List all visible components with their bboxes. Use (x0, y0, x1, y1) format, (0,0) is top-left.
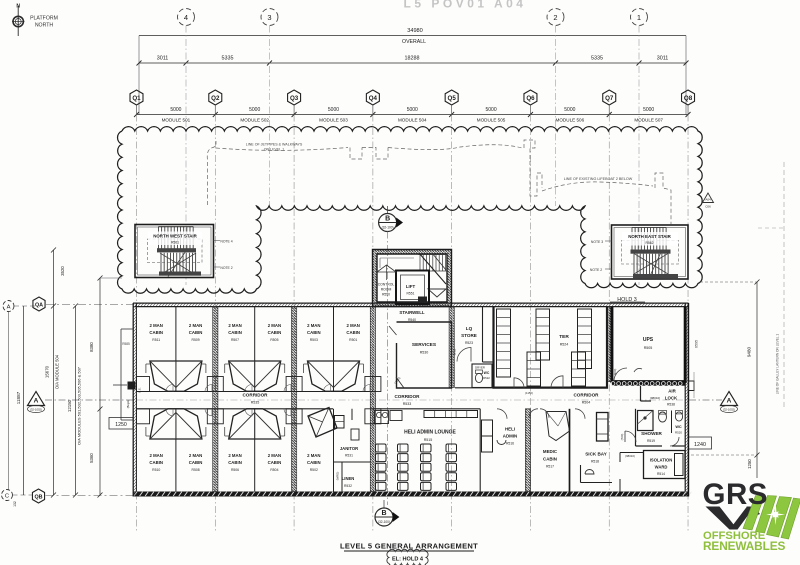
svg-text:NOTE 2: NOTE 2 (590, 268, 602, 272)
svg-text:STORE: STORE (461, 333, 477, 338)
svg-text:1: 1 (637, 13, 641, 22)
svg-text:HELI ADMIN LOUNGE: HELI ADMIN LOUNGE (404, 430, 456, 436)
svg-text:CABIN: CABIN (268, 330, 282, 335)
svg-text:LINEN: LINEN (342, 476, 355, 481)
svg-text:5000: 5000 (328, 107, 339, 113)
svg-text:1250: 1250 (115, 422, 127, 428)
svg-text:C: C (5, 493, 9, 499)
svg-text:PLATFORM: PLATFORM (30, 16, 58, 22)
svg-text:R505: R505 (644, 346, 653, 350)
svg-text:2 MAN: 2 MAN (189, 453, 202, 458)
svg-text:C06: C06 (705, 205, 711, 209)
svg-text:R501: R501 (349, 338, 357, 342)
svg-text:3520: 3520 (60, 266, 65, 276)
svg-text:CABIN: CABIN (228, 330, 242, 335)
svg-text:(760): (760) (620, 434, 624, 441)
svg-text:R510: R510 (152, 468, 160, 472)
svg-text:R520: R520 (675, 431, 682, 435)
svg-text:5000: 5000 (407, 107, 418, 113)
svg-text:MODULE 503: MODULE 503 (319, 118, 348, 123)
svg-text:5335: 5335 (222, 56, 234, 62)
svg-text:R504: R504 (270, 468, 278, 472)
svg-text:STAIRWELL: STAIRWELL (399, 310, 425, 315)
svg-text:(32-1002): (32-1002) (30, 408, 42, 412)
svg-text:34980: 34980 (407, 28, 423, 34)
svg-text:18288: 18288 (405, 56, 420, 62)
svg-text:N: N (16, 4, 20, 10)
svg-text:R522: R522 (483, 376, 490, 380)
svg-text:CABIN: CABIN (189, 330, 203, 335)
svg-text:LINE OF EXISTING LIFEBOAT 2 BE: LINE OF EXISTING LIFEBOAT 2 BELOW (564, 177, 633, 181)
svg-text:MODULE 501: MODULE 501 (162, 118, 191, 123)
svg-text:R531: R531 (345, 454, 353, 458)
svg-text:132: 132 (13, 501, 17, 507)
svg-text:5360: 5360 (89, 453, 94, 463)
svg-text:O/A MODULE 504: O/A MODULE 504 (55, 354, 60, 389)
svg-text:R516: R516 (506, 442, 514, 446)
svg-text:R532: R532 (344, 484, 352, 488)
svg-text:R518: R518 (591, 460, 599, 464)
svg-text:R535: R535 (251, 401, 260, 405)
svg-text:OVERALL: OVERALL (402, 39, 426, 45)
svg-text:4: 4 (184, 13, 188, 22)
svg-text:MODULE 507: MODULE 507 (634, 118, 663, 123)
svg-text:SHOWER: SHOWER (641, 431, 662, 436)
svg-text:R506: R506 (231, 468, 239, 472)
svg-text:R508: R508 (192, 468, 200, 472)
svg-text:GRS: GRS (703, 478, 768, 511)
svg-text:Q3: Q3 (290, 95, 299, 102)
svg-text:B: B (385, 216, 390, 223)
svg-text:R519: R519 (647, 439, 655, 443)
svg-text:CORRIDOR: CORRIDOR (394, 394, 420, 399)
svg-text:5000: 5000 (249, 107, 260, 113)
svg-text:ADMIN: ADMIN (503, 434, 517, 439)
svg-text:R523: R523 (465, 341, 473, 345)
svg-text:MEDIC: MEDIC (543, 449, 558, 454)
svg-text:CABIN: CABIN (189, 460, 203, 465)
svg-text:CABIN: CABIN (307, 330, 321, 335)
svg-text:WARD: WARD (655, 465, 668, 470)
svg-text:Q7: Q7 (605, 95, 614, 102)
svg-text:ISOLATION: ISOLATION (650, 458, 673, 463)
svg-text:Q8: Q8 (684, 95, 693, 102)
svg-text:CABIN: CABIN (307, 460, 321, 465)
svg-text:R551: R551 (407, 292, 415, 296)
svg-text:(1150): (1150) (525, 391, 533, 395)
svg-text:E.E.: E.E. (138, 387, 142, 393)
svg-text:R561: R561 (171, 241, 179, 245)
svg-text:CABIN: CABIN (268, 460, 282, 465)
svg-text:NORTH WEST STAIR: NORTH WEST STAIR (153, 234, 197, 239)
svg-text:NOTE 3: NOTE 3 (591, 240, 603, 244)
svg-text:LINE OF JETPIPES & WALKWAYS: LINE OF JETPIPES & WALKWAYS (246, 143, 303, 147)
svg-text:LQ: LQ (466, 326, 473, 331)
svg-text:1240: 1240 (694, 442, 706, 448)
svg-text:DRYER: DRYER (475, 366, 485, 370)
svg-text:(32-1002): (32-1002) (723, 408, 735, 412)
svg-text:LIFT: LIFT (406, 284, 416, 289)
svg-text:LINE OF GALLEY LANTERN ON LEVE: LINE OF GALLEY LANTERN ON LEVEL 1 (776, 334, 780, 395)
svg-text:R503: R503 (310, 338, 318, 342)
svg-text:5000: 5000 (564, 107, 575, 113)
svg-text:5335: 5335 (591, 56, 603, 62)
svg-text:CABIN: CABIN (149, 330, 163, 335)
svg-text:R504: R504 (582, 401, 591, 405)
svg-text:R511: R511 (152, 338, 160, 342)
svg-text:(32-100): (32-100) (378, 520, 390, 524)
svg-text:2 MAN: 2 MAN (150, 453, 163, 458)
svg-text:TER: TER (559, 334, 569, 340)
svg-text:2 MAN: 2 MAN (228, 453, 241, 458)
svg-text:MODULE 505: MODULE 505 (477, 118, 506, 123)
svg-text:NORTH: NORTH (35, 23, 54, 29)
svg-text:ON LEVEL 1: ON LEVEL 1 (264, 148, 284, 152)
svg-text:6595: 6595 (695, 340, 699, 348)
svg-text:RENEWABLES: RENEWABLES (703, 539, 785, 553)
svg-text:15670: 15670 (45, 365, 50, 378)
svg-text:Q5: Q5 (448, 95, 457, 102)
svg-text:MODULE 504: MODULE 504 (398, 118, 427, 123)
svg-text:5000: 5000 (170, 107, 181, 113)
svg-text:SICK BAY: SICK BAY (585, 452, 607, 457)
svg-text:MODULE 502: MODULE 502 (240, 118, 269, 123)
svg-text:2: 2 (553, 13, 557, 22)
svg-text:AIR: AIR (668, 389, 676, 394)
svg-text:JANITOR: JANITOR (340, 446, 358, 451)
svg-text:R538: R538 (667, 403, 675, 407)
svg-text:CORRIDOR: CORRIDOR (242, 393, 268, 398)
svg-text:SERVICES: SERVICES (412, 342, 437, 348)
svg-text:R550: R550 (382, 293, 390, 297)
svg-text:MODULE 506: MODULE 506 (556, 118, 585, 123)
svg-text:3: 3 (267, 13, 271, 22)
svg-text:(98010): (98010) (650, 396, 660, 400)
svg-text:A: A (7, 304, 11, 310)
svg-text:HELI: HELI (505, 427, 515, 432)
svg-text:Q1: Q1 (132, 95, 141, 102)
svg-text:(Begin): (Begin) (126, 400, 130, 408)
svg-text:12150: 12150 (67, 399, 72, 412)
svg-text:CABIN: CABIN (346, 330, 360, 335)
svg-text:2 MAN: 2 MAN (307, 453, 320, 458)
svg-text:R502: R502 (310, 468, 318, 472)
svg-text:WC: WC (484, 371, 490, 375)
svg-text:LOCK: LOCK (665, 396, 678, 401)
svg-text:2 MAN: 2 MAN (307, 323, 320, 328)
svg-text:QB: QB (34, 494, 42, 500)
svg-text:Q2: Q2 (211, 95, 220, 102)
svg-text:A04: A04 (705, 198, 711, 202)
svg-text:NOTE 4: NOTE 4 (220, 239, 232, 243)
svg-text:CABIN: CABIN (228, 460, 242, 465)
svg-text:2 MAN: 2 MAN (189, 323, 202, 328)
svg-text:Q4: Q4 (369, 95, 378, 102)
svg-text:(98010): (98010) (625, 454, 635, 458)
svg-text:2 MAN: 2 MAN (150, 323, 163, 328)
svg-text:CABIN: CABIN (149, 460, 163, 465)
svg-text:CABIN: CABIN (543, 457, 557, 462)
svg-text:B: B (381, 510, 386, 517)
svg-text:2 MAN: 2 MAN (347, 323, 360, 328)
svg-text:A: A (727, 398, 732, 405)
svg-text:R515: R515 (424, 438, 433, 442)
svg-text:NORTH EAST STAIR: NORTH EAST STAIR (628, 234, 671, 239)
svg-text:2 MAN: 2 MAN (268, 453, 281, 458)
svg-text:2 MAN: 2 MAN (228, 323, 241, 328)
svg-text:R530: R530 (420, 351, 429, 355)
svg-text:R517: R517 (546, 465, 554, 469)
svg-text:R505: R505 (270, 338, 278, 342)
svg-text:CORRIDOR: CORRIDOR (573, 393, 599, 398)
svg-text:5000: 5000 (485, 107, 496, 113)
svg-text:3011: 3011 (657, 56, 669, 62)
svg-text:(32-100): (32-100) (382, 226, 394, 230)
svg-text:WC: WC (675, 425, 682, 429)
svg-text:L5 POV01 A04: L5 POV01 A04 (404, 0, 527, 11)
svg-text:1250: 1250 (747, 459, 752, 469)
svg-text:R509: R509 (192, 338, 200, 342)
svg-text:11887: 11887 (16, 391, 21, 404)
svg-text:EL: HOLD 4: EL: HOLD 4 (392, 557, 424, 563)
svg-text:R533: R533 (403, 402, 412, 406)
svg-text:ROOM: ROOM (381, 288, 392, 292)
svg-text:(WRD): (WRD) (336, 472, 340, 481)
svg-text:R585: R585 (122, 342, 130, 346)
svg-text:QA: QA (35, 302, 43, 308)
svg-text:NOTE 2: NOTE 2 (220, 266, 232, 270)
svg-text:(915): (915) (453, 349, 457, 356)
svg-text:5000: 5000 (643, 107, 654, 113)
svg-text:A: A (34, 398, 39, 405)
svg-text:2 MAN: 2 MAN (268, 323, 281, 328)
svg-text:(900): (900) (613, 369, 617, 376)
svg-text:CONTROL: CONTROL (378, 283, 395, 287)
svg-text:8380: 8380 (89, 342, 94, 352)
svg-text:R562: R562 (645, 241, 653, 245)
svg-text:R514: R514 (657, 472, 665, 476)
svg-text:R524: R524 (560, 343, 569, 347)
svg-text:3011: 3011 (157, 56, 169, 62)
svg-text:R507: R507 (231, 338, 239, 342)
svg-text:9480: 9480 (747, 346, 752, 357)
svg-text:Q6: Q6 (526, 95, 535, 102)
svg-text:O/A MODULES 501,502,503,505,50: O/A MODULES 501,502,503,505,506 & 507 (77, 366, 82, 445)
svg-text:UPS: UPS (643, 337, 654, 343)
